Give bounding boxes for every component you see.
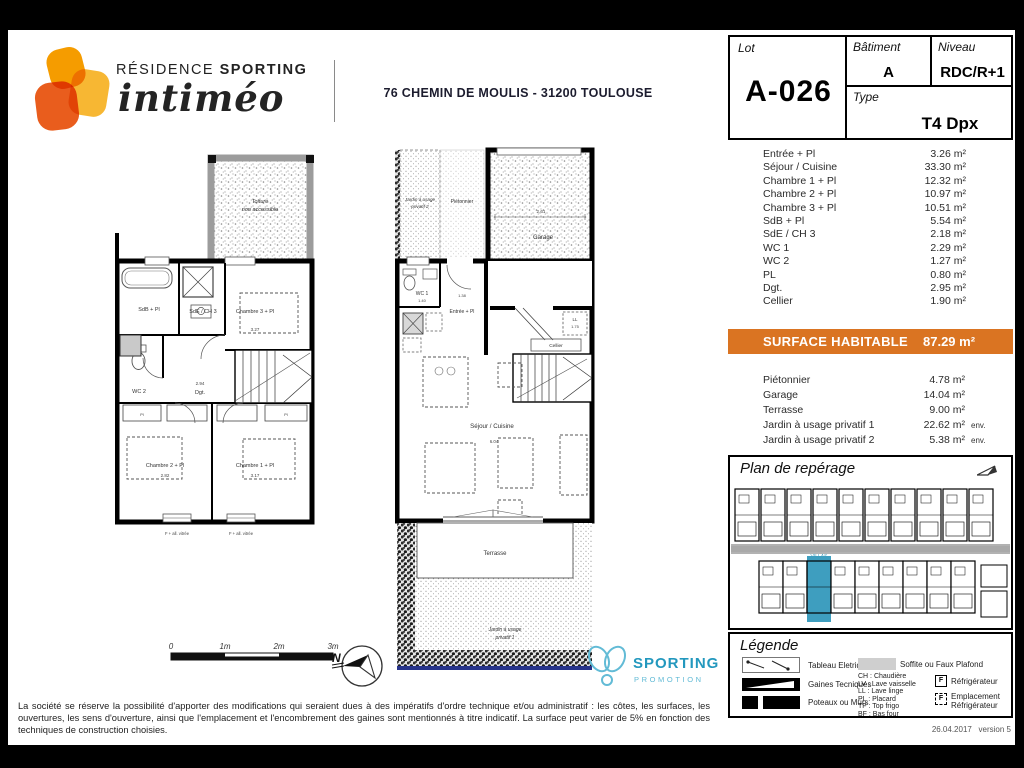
room-label-wc2: WC 2 — [132, 389, 146, 395]
ll-label: LL — [573, 317, 578, 322]
abbr-pl: PL : Placard — [858, 696, 916, 704]
sporting-promotion-logo: SPORTING PROMOTION — [585, 644, 725, 692]
batiment-value: A — [847, 64, 930, 81]
project-address: 76 CHEMIN DE MOULIS - 31200 TOULOUSE — [338, 86, 698, 100]
annex-suffix — [965, 388, 1013, 403]
hedge-left — [397, 523, 415, 666]
batiment-cell: Bâtiment A — [847, 37, 932, 87]
room-name: WC 2 — [763, 255, 894, 268]
batiment-label: Bâtiment — [853, 40, 900, 54]
room-area: 3.26 m² — [894, 148, 1013, 161]
site-map: VILLAS — [731, 485, 1010, 627]
north-arrow-icon: N — [330, 636, 386, 692]
wc1-label: WC 1 — [416, 291, 429, 297]
promotion-sub: PROMOTION — [634, 675, 704, 684]
dim-ch2: 2.82 — [161, 473, 170, 478]
niveau-label: Niveau — [938, 40, 975, 54]
legend-label-soffite: Soffite ou Faux Plafond — [900, 660, 983, 669]
room-area: 10.97 m² — [894, 188, 1013, 201]
plan-sheet: RÉSIDENCE SPORTING intiméo 76 CHEMIN DE … — [8, 30, 1015, 745]
table-row: Séjour / Cuisine33.30 m² — [728, 161, 1013, 174]
pl-label-1: Pl — [140, 413, 144, 417]
room-name: Dgt. — [763, 282, 894, 295]
roof-label-1: Toiture — [252, 199, 269, 205]
room-name: SdB + Pl — [763, 215, 894, 228]
garden2-label-1: Jardin à usage — [404, 197, 436, 202]
annex-area: 9.00 m² — [905, 403, 965, 418]
scale-tick-0: 0 — [169, 642, 174, 651]
hedge-bottom — [397, 650, 592, 666]
terrasse-label: Terrasse — [483, 551, 507, 557]
annex-name: Piétonnier — [763, 373, 905, 388]
room-label-dgt: Dgt. — [195, 390, 206, 396]
north-label: N — [332, 651, 341, 665]
room-name: Chambre 1 + Pl — [763, 175, 894, 188]
scale-tick-2m: 2m — [272, 642, 284, 651]
annex-areas-table: Piétonnier4.78 m² Garage14.04 m² Terrass… — [728, 373, 1013, 448]
annex-suffix — [965, 373, 1013, 388]
lot-value: A-026 — [730, 75, 847, 109]
electrical-panel-icon — [742, 657, 800, 673]
room-areas-table: Entrée + Pl3.26 m² Séjour / Cuisine33.30… — [728, 148, 1013, 309]
floorplan-upper-level: Toiture non accessible — [115, 145, 315, 545]
annex-name: Jardin à usage privatif 2 — [763, 433, 905, 448]
table-row: Entrée + Pl3.26 m² — [728, 148, 1013, 161]
villas-label: VILLAS — [811, 554, 829, 560]
table-row: Garage14.04 m² — [728, 388, 1013, 403]
posts-walls-icon — [742, 696, 800, 709]
sejour-label: Séjour / Cuisine — [470, 423, 514, 430]
boundary-line — [397, 666, 592, 670]
room-area: 5.54 m² — [894, 215, 1013, 228]
type-value: T4 Dpx — [847, 114, 1013, 134]
table-row: PL0.80 m² — [728, 269, 1013, 282]
annex-suffix: env. — [965, 433, 1013, 448]
version-value: version 5 — [979, 725, 1011, 734]
technical-ducts-icon — [742, 678, 800, 691]
table-row: SdB + Pl5.54 m² — [728, 215, 1013, 228]
location-plan-title: Plan de repérage — [740, 460, 855, 477]
dim-ch1: 3.17 — [251, 473, 260, 478]
room-area: 33.30 m² — [894, 161, 1013, 174]
dim-dgt: 2.94 — [196, 381, 205, 386]
table-row: WC 21.27 m² — [728, 255, 1013, 268]
type-label: Type — [853, 90, 879, 104]
lot-label: Lot — [738, 41, 755, 55]
lot-info-card: Lot A-026 Bâtiment A Niveau RDC/R+1 Type… — [728, 35, 1013, 140]
legend-label-refrigerateur: Réfrigérateur — [951, 677, 998, 686]
table-row: Chambre 3 + Pl10.51 m² — [728, 202, 1013, 215]
legend-label-emplacement: Emplacement Réfrigérateur — [951, 692, 1011, 710]
legal-disclaimer: La société se réserve la possibilité d'a… — [18, 701, 710, 736]
room-name: Entrée + Pl — [763, 148, 894, 161]
room-area: 12.32 m² — [894, 175, 1013, 188]
room-name: Chambre 2 + Pl — [763, 188, 894, 201]
stairs-upper — [235, 350, 312, 403]
room-label-sde: SdE / CH 3 — [189, 309, 217, 315]
abbr-lv: LV : Lave vaisselle — [858, 681, 916, 689]
table-row: Piétonnier4.78 m² — [728, 373, 1013, 388]
table-row: Dgt.2.95 m² — [728, 282, 1013, 295]
room-area: 1.27 m² — [894, 255, 1013, 268]
niveau-value: RDC/R+1 — [932, 64, 1013, 81]
table-row: Jardin à usage privatif 25.38 m²env. — [728, 433, 1013, 448]
room-area: 2.18 m² — [894, 228, 1013, 241]
fridge-spot-symbol: F — [935, 693, 947, 705]
table-row: Chambre 2 + Pl10.97 m² — [728, 188, 1013, 201]
type-cell: Type T4 Dpx — [847, 87, 1013, 138]
room-name: PL — [763, 269, 894, 282]
cellier-label: Cellier — [549, 343, 563, 349]
dim-ch3: 3.27 — [251, 327, 260, 332]
garden2-label-2: privatif 2 — [410, 204, 429, 209]
annex-area: 4.78 m² — [905, 373, 965, 388]
table-row: Cellier1.90 m² — [728, 295, 1013, 308]
dim-wc1: 1.40 — [418, 298, 427, 303]
annex-area: 14.04 m² — [905, 388, 965, 403]
room-label-ch2: Chambre 2 + Pl — [146, 463, 184, 469]
garden1-label-2: privatif 1 — [495, 635, 515, 641]
table-row: Jardin à usage privatif 122.62 m²env. — [728, 418, 1013, 433]
window-label-1: F + all. vitrée — [165, 531, 190, 536]
entree-label: Entrée + Pl — [450, 309, 475, 315]
stairs-ground — [513, 354, 592, 402]
floorplan-ground-level: Jardin à usage privatif 2 Piétonnier 2.6… — [395, 145, 597, 675]
surface-label: SURFACE HABITABLE — [763, 334, 908, 349]
annex-name: Terrasse — [763, 403, 905, 418]
dim-ll: 1.75 — [571, 324, 580, 329]
table-row: WC 12.29 m² — [728, 242, 1013, 255]
dim-entree: 1.38 — [458, 293, 467, 298]
location-plan-box: Plan de repérage — [728, 455, 1013, 630]
room-area: 1.90 m² — [894, 295, 1013, 308]
room-name: Chambre 3 + Pl — [763, 202, 894, 215]
garden1-label-1: Jardin à usage — [488, 627, 522, 633]
garage-label: Garage — [533, 235, 554, 241]
pietonnier-label: Piétonnier — [451, 199, 474, 205]
scale-bar: 0 1m 2m 3m — [163, 640, 339, 668]
room-name: Séjour / Cuisine — [763, 161, 894, 174]
table-row: Terrasse9.00 m² — [728, 403, 1013, 418]
intimeo-logo-icon — [28, 42, 113, 138]
abbr-bf: BF : Bas four — [858, 711, 916, 719]
butterfly-icon — [585, 644, 629, 685]
room-name: WC 1 — [763, 242, 894, 255]
abbr-ll: LL : Lave linge — [858, 688, 916, 696]
niveau-cell: Niveau RDC/R+1 — [932, 37, 1013, 87]
legend-title: Légende — [740, 637, 798, 654]
annex-suffix — [965, 403, 1013, 418]
window-label-2: F + all. vitrée — [229, 531, 254, 536]
brand-divider — [334, 60, 335, 122]
highlighted-lot — [807, 556, 831, 622]
room-area: 2.95 m² — [894, 282, 1013, 295]
room-name: Cellier — [763, 295, 894, 308]
annex-area: 5.38 m² — [905, 433, 965, 448]
lot-cell: Lot A-026 — [730, 37, 847, 138]
room-area: 10.51 m² — [894, 202, 1013, 215]
room-name: SdE / CH 3 — [763, 228, 894, 241]
abbr-tf: TF : Top frigo — [858, 703, 916, 711]
dim-garage: 2.61 — [537, 209, 546, 214]
annex-name: Jardin à usage privatif 1 — [763, 418, 905, 433]
annex-suffix: env. — [965, 418, 1013, 433]
roof-label-2: non accessible — [242, 207, 278, 213]
info-panel: Lot A-026 Bâtiment A Niveau RDC/R+1 Type… — [728, 35, 1013, 741]
abbr-ch: CH : Chaudière — [858, 673, 916, 681]
surface-value: 87.29 m² — [923, 334, 975, 349]
annex-name: Garage — [763, 388, 905, 403]
brand-name: intiméo — [118, 76, 284, 120]
dim-sejour: 6.04 — [490, 439, 499, 444]
revision-date: 26.04.2017 version 5 — [932, 725, 1011, 734]
date-value: 26.04.2017 — [932, 725, 972, 734]
table-row: Chambre 1 + Pl12.32 m² — [728, 175, 1013, 188]
north-glyph-icon — [977, 464, 999, 477]
table-row: SdE / CH 32.18 m² — [728, 228, 1013, 241]
fridge-symbol: F — [935, 675, 947, 687]
room-area: 2.29 m² — [894, 242, 1013, 255]
room-area: 0.80 m² — [894, 269, 1013, 282]
annex-area: 22.62 m² — [905, 418, 965, 433]
room-label-sdb: SdB + Pl — [138, 307, 160, 313]
legend-box: Légende Tableau Eletrique Gaines Tecniqu… — [728, 632, 1013, 718]
surface-habitable-band: SURFACE HABITABLE 87.29 m² — [728, 329, 1013, 354]
legend-abbreviations: CH : Chaudière LV : Lave vaisselle LL : … — [858, 673, 916, 719]
promotion-name: SPORTING — [633, 655, 719, 672]
room-label-ch3: Chambre 3 + Pl — [236, 309, 274, 315]
scale-tick-1m: 1m — [219, 642, 230, 651]
room-label-ch1: Chambre 1 + Pl — [236, 463, 274, 469]
soffit-swatch — [858, 658, 896, 670]
page: RÉSIDENCE SPORTING intiméo 76 CHEMIN DE … — [0, 0, 1024, 768]
pl-label-2: Pl — [284, 413, 288, 417]
